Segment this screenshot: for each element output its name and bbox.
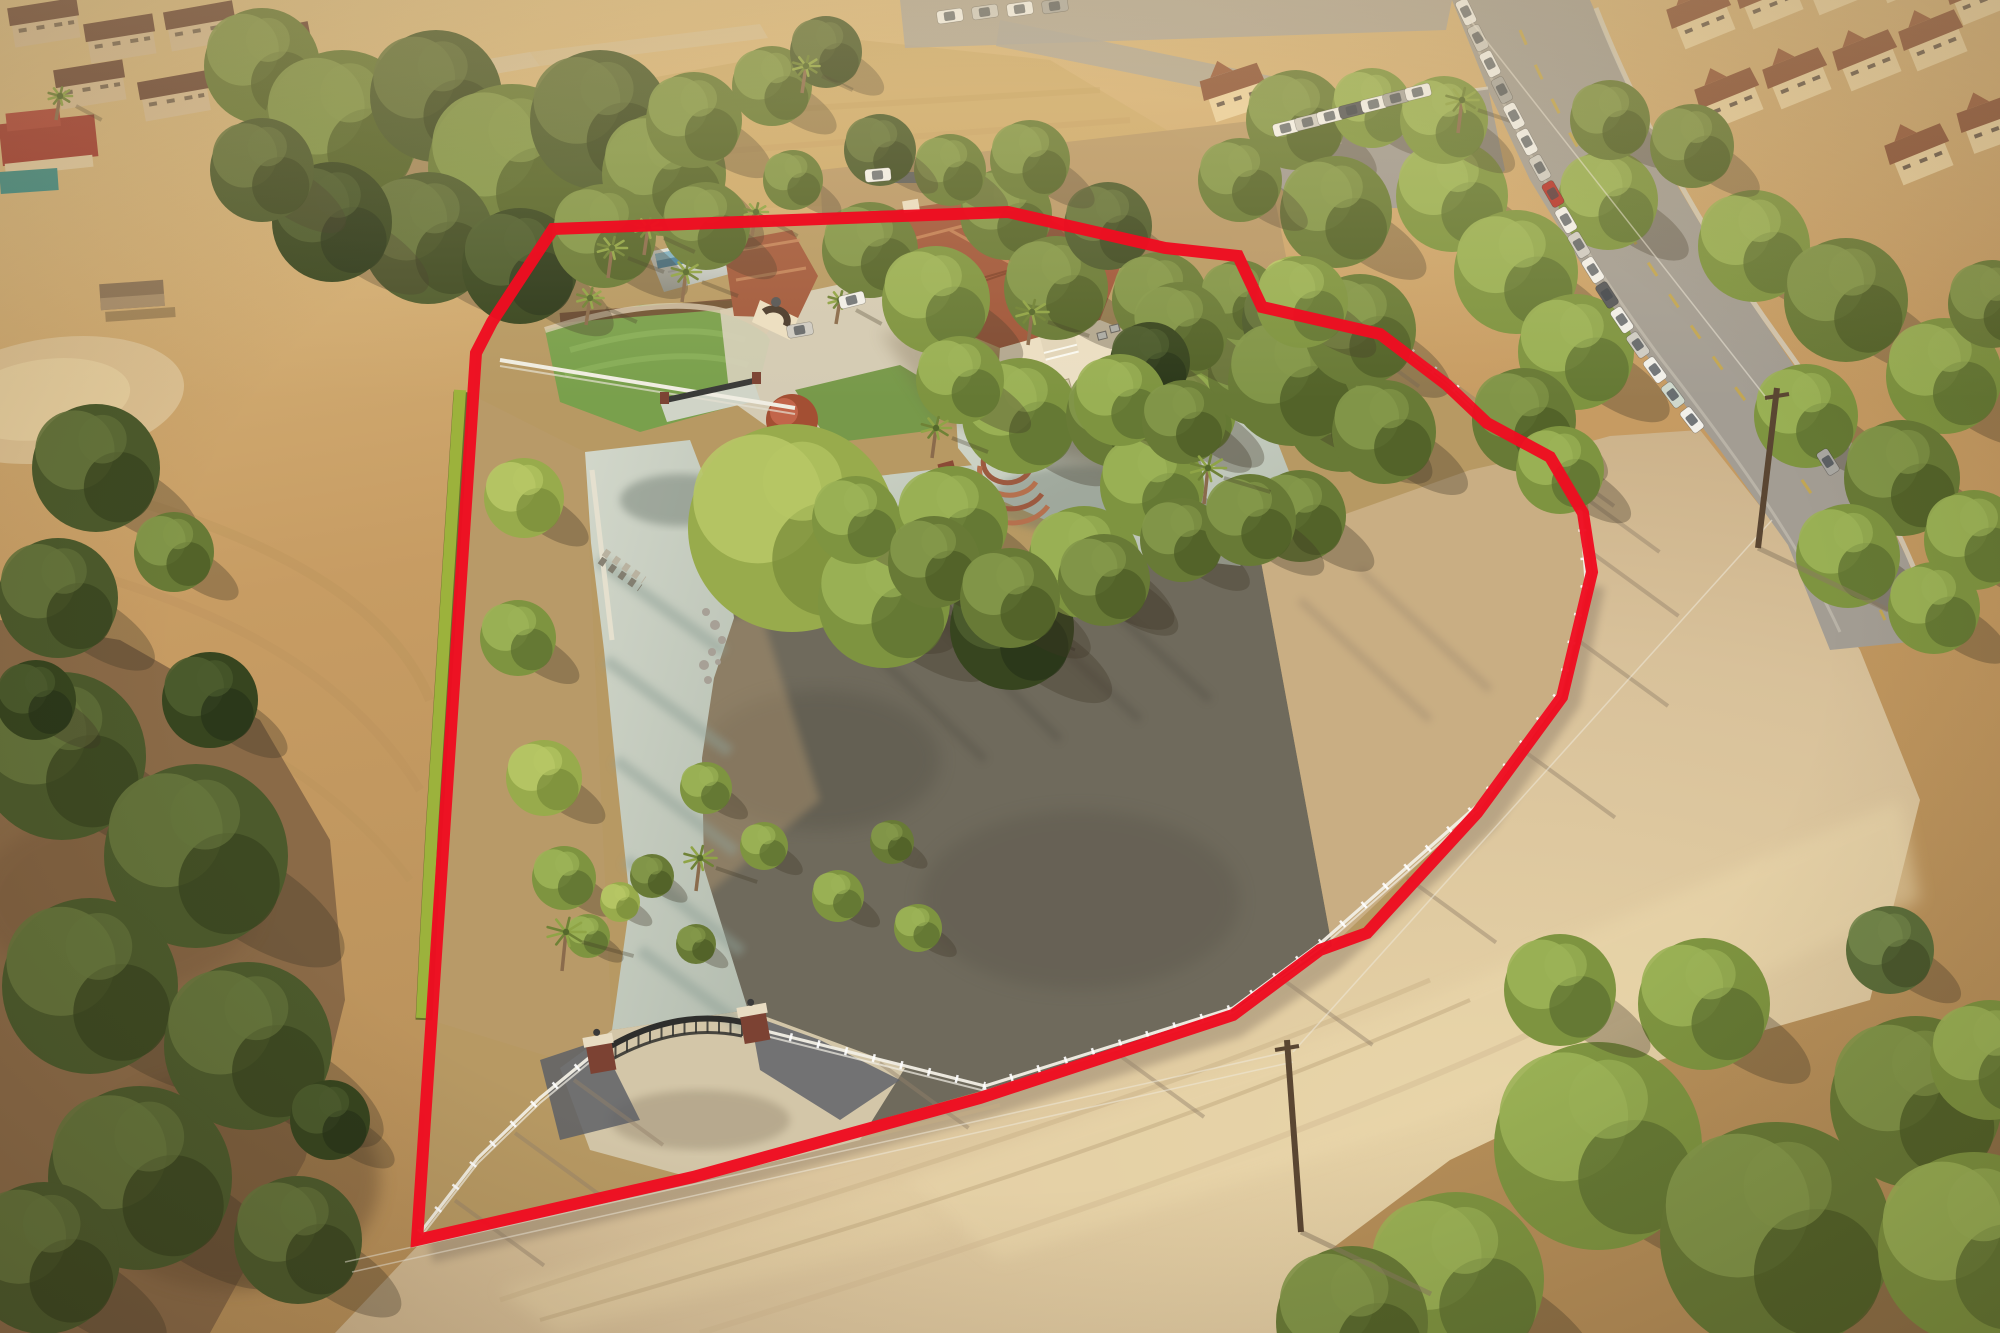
aerial-photo-canvas [0, 0, 2000, 1333]
aerial-property-photo [0, 0, 2000, 1333]
vignette [0, 0, 2000, 1333]
